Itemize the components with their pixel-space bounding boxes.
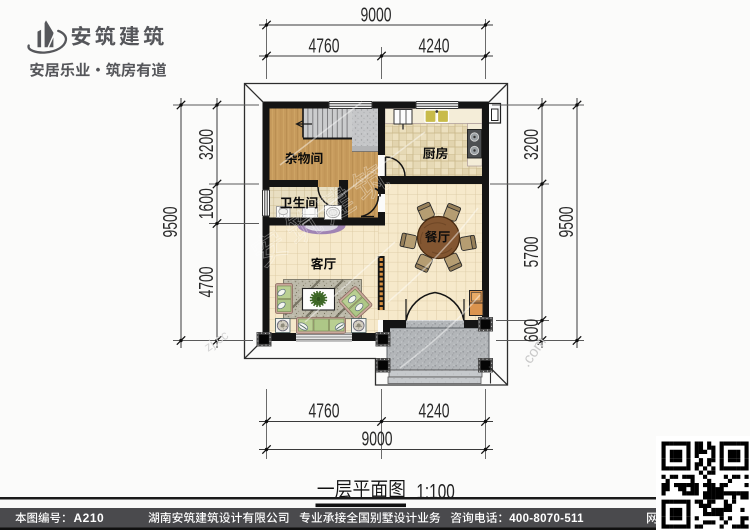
svg-text:4240: 4240	[419, 399, 450, 422]
svg-text:9500: 9500	[554, 206, 577, 237]
svg-text:4240: 4240	[419, 34, 450, 57]
svg-text:4700: 4700	[194, 266, 217, 297]
svg-text:4760: 4760	[309, 34, 340, 57]
svg-text:1600: 1600	[194, 188, 217, 219]
svg-text:5700: 5700	[519, 236, 542, 267]
svg-text:3200: 3200	[519, 129, 542, 160]
svg-text:400-8070-511: 400-8070-511	[509, 513, 584, 525]
svg-text:1:100: 1:100	[416, 479, 454, 503]
svg-text:9000: 9000	[362, 427, 393, 450]
svg-text:3200: 3200	[194, 129, 217, 160]
svg-text:4760: 4760	[309, 399, 340, 422]
svg-text:9500: 9500	[158, 206, 181, 237]
svg-text:9000: 9000	[361, 3, 392, 26]
svg-text:A210: A210	[74, 511, 105, 525]
